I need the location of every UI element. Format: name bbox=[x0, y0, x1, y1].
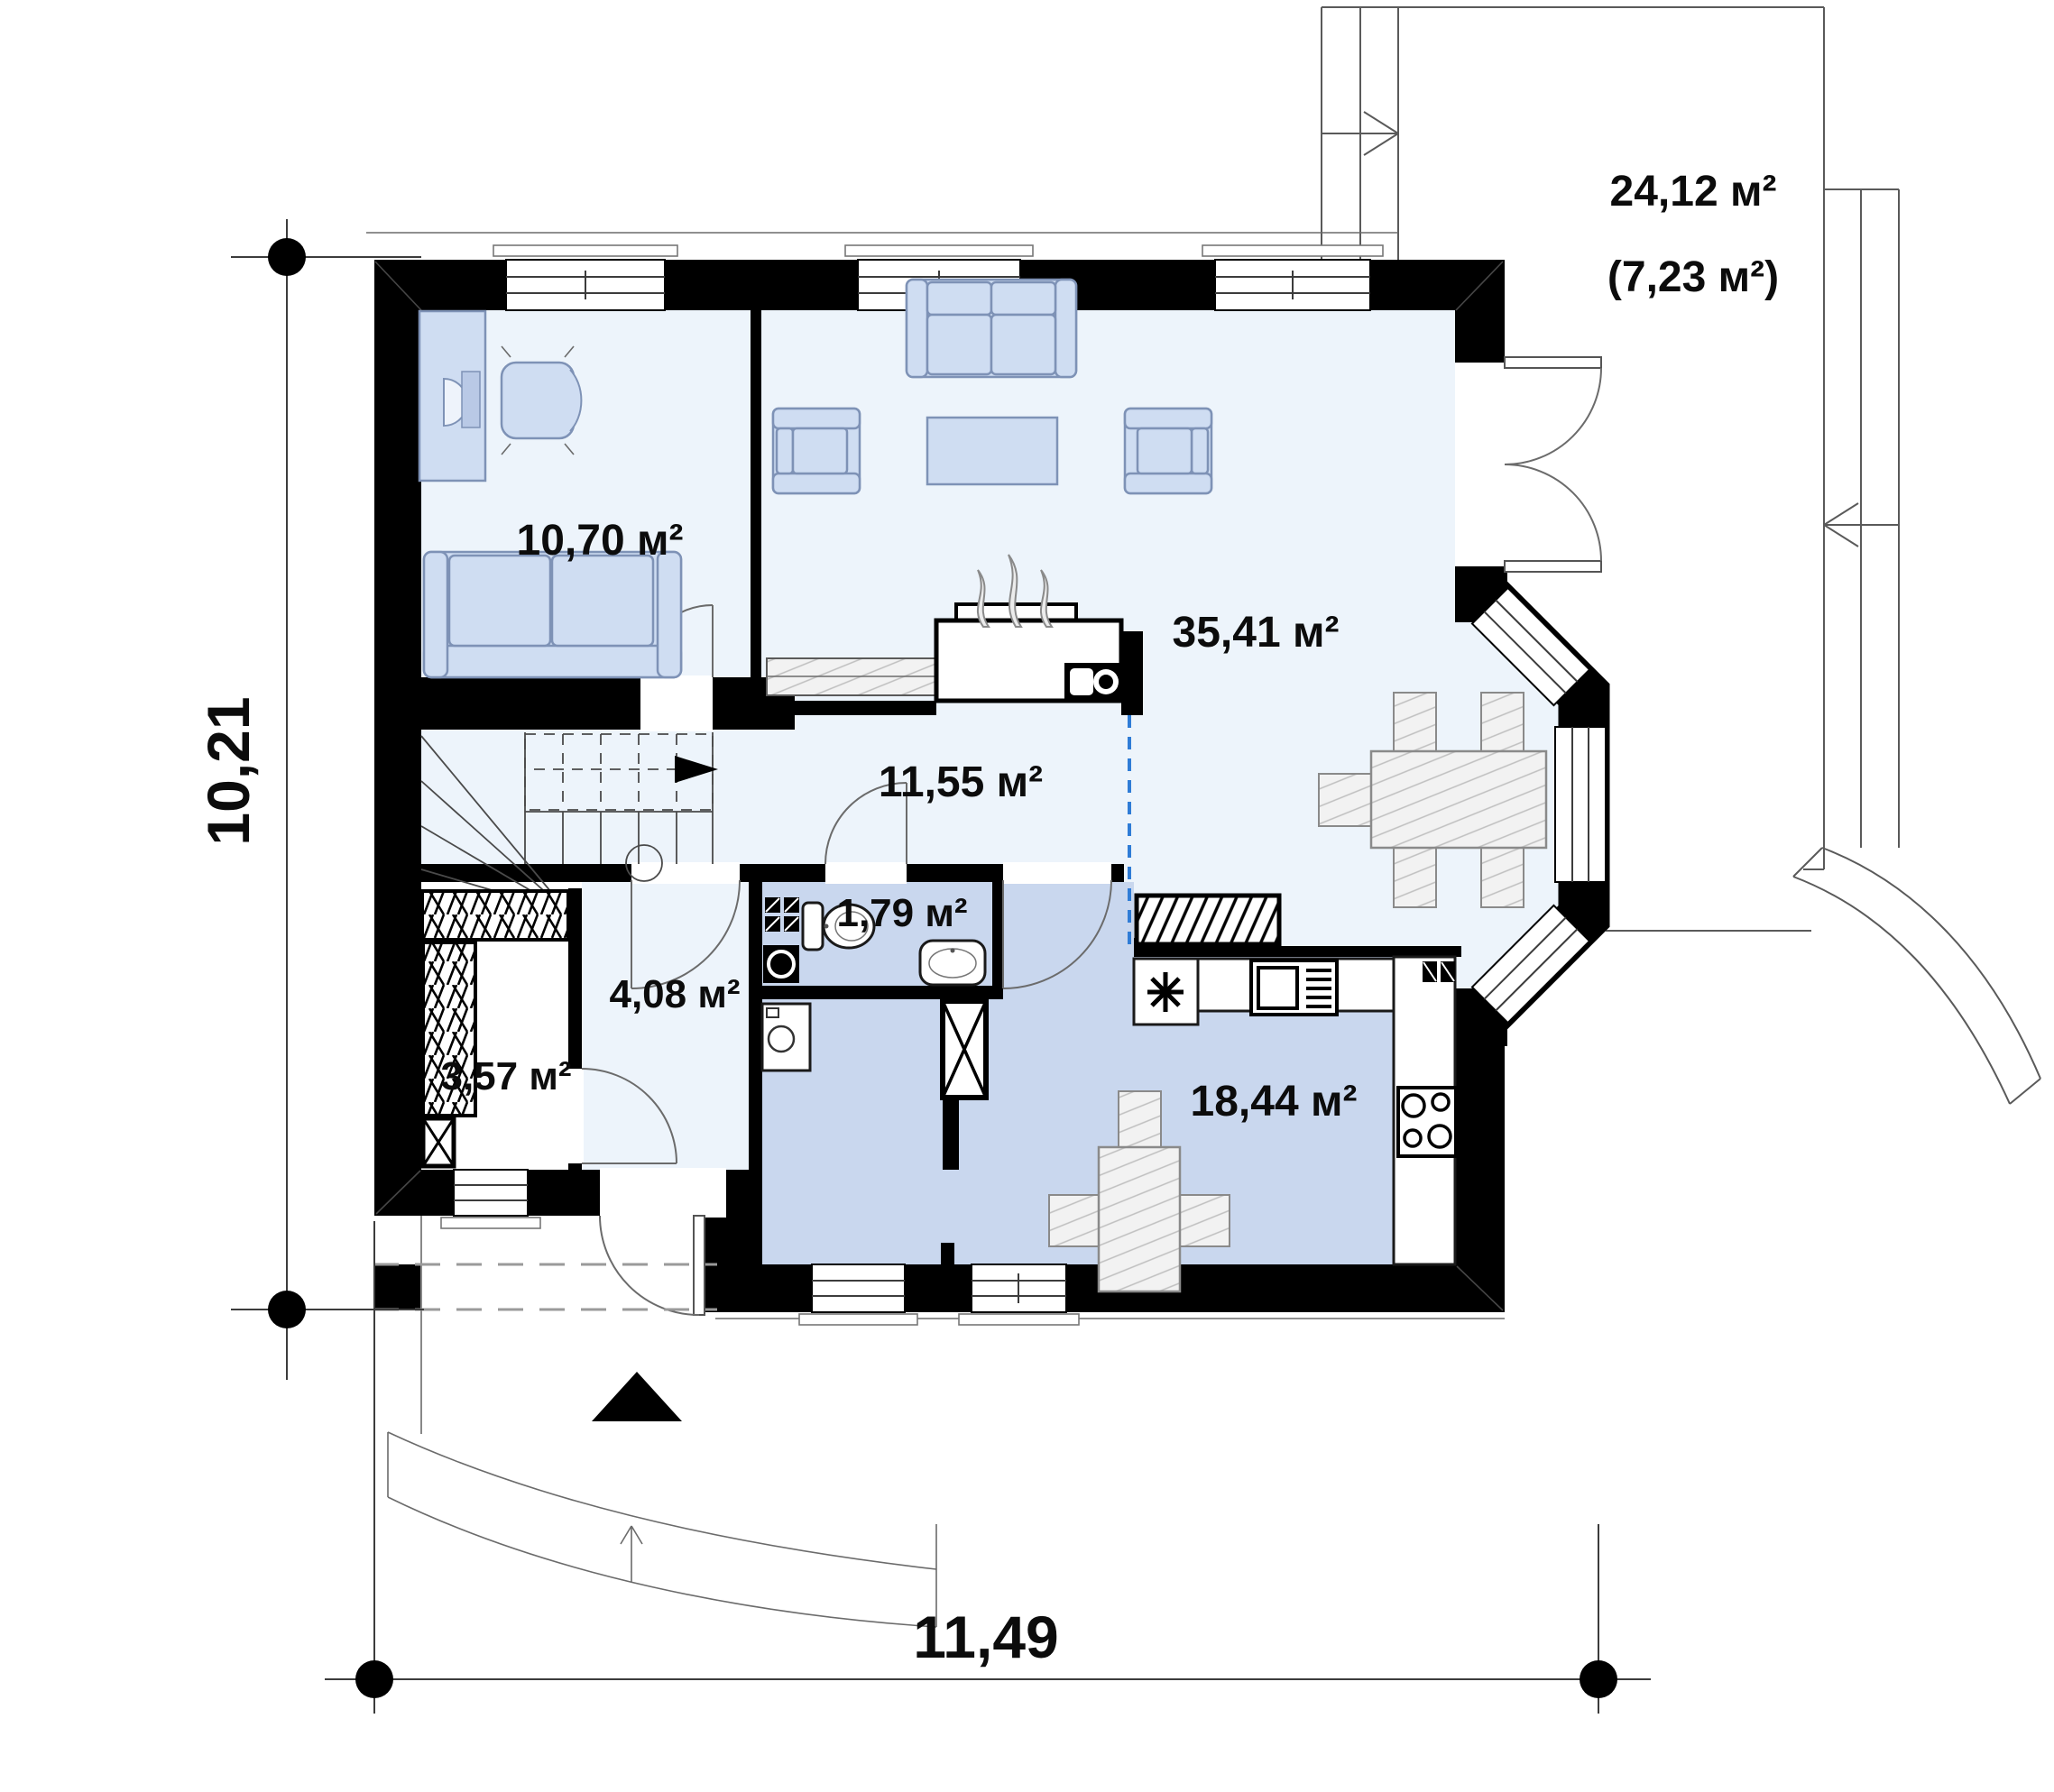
kitchen-area-label: 18,44 м² bbox=[1191, 1078, 1358, 1126]
oven bbox=[1251, 960, 1337, 1015]
living-sofa bbox=[907, 280, 1076, 377]
dim-marker bbox=[268, 1291, 306, 1328]
coffee-table bbox=[927, 418, 1057, 484]
wall-pier-fireplace bbox=[1121, 631, 1143, 715]
office-area-label: 10,70 м² bbox=[517, 517, 684, 565]
terrace-area-label-secondary: (7,23 м²) bbox=[1607, 253, 1779, 301]
dining-chair bbox=[1394, 693, 1436, 754]
wall-vestibule-east bbox=[749, 880, 762, 1170]
dining-chair bbox=[1394, 846, 1436, 907]
dining-chair bbox=[1481, 846, 1524, 907]
curved-step-outer bbox=[1822, 848, 2040, 1079]
vestibule-area-label: 4,08 м² bbox=[609, 972, 740, 1016]
closet-rail-top bbox=[422, 891, 568, 940]
wall-office-living bbox=[751, 269, 761, 677]
window-office-north bbox=[493, 245, 677, 310]
floor-plan-drawing: 10,21 11,49 10,70 м² 35,41 м² 11,55 м² 1… bbox=[0, 0, 2054, 1792]
armchair-left bbox=[773, 409, 860, 493]
washing-machine bbox=[762, 1004, 810, 1071]
dining-table bbox=[1371, 751, 1546, 848]
kitchen-table bbox=[1099, 1147, 1180, 1291]
kitchen-chair bbox=[1180, 1195, 1230, 1246]
wall-wc-east bbox=[992, 880, 1003, 986]
boiler-unit bbox=[1064, 663, 1121, 701]
vent-shaft-wardrobe bbox=[423, 1118, 454, 1166]
wall-hall-living bbox=[761, 701, 936, 715]
window-wardrobe-south bbox=[441, 1170, 540, 1228]
steps-direction-arrow bbox=[621, 1526, 642, 1583]
wall-office-south bbox=[421, 677, 795, 730]
dim-height-label: 10,21 bbox=[195, 696, 262, 845]
window-kitchen-south-1 bbox=[799, 1264, 917, 1325]
sink-symbol bbox=[1147, 972, 1184, 1012]
curved-entry-steps bbox=[388, 1432, 936, 1627]
dim-width-label: 11,49 bbox=[913, 1604, 1059, 1670]
kitchen-chair bbox=[1049, 1195, 1099, 1246]
armchair-right bbox=[1125, 409, 1211, 493]
dim-marker bbox=[1580, 1660, 1617, 1698]
floor-plan-page: 10,21 11,49 10,70 м² 35,41 м² 11,55 м² 1… bbox=[0, 0, 2054, 1792]
curved-step-inner bbox=[1793, 877, 2010, 1104]
wall-east-upper bbox=[1455, 310, 1505, 363]
wardrobe-area-label: 3,57 м² bbox=[440, 1054, 571, 1098]
wall-wc-south bbox=[749, 986, 1003, 999]
tv-sideboard bbox=[767, 658, 935, 695]
wall-west bbox=[374, 260, 421, 1216]
vent-shaft-kitchen bbox=[943, 1001, 986, 1098]
living-area-label: 35,41 м² bbox=[1173, 609, 1340, 657]
dining-chair bbox=[1319, 774, 1373, 826]
vestibule-floor bbox=[582, 882, 749, 1170]
dim-marker bbox=[268, 238, 306, 276]
wall-stub-shaft bbox=[943, 1098, 959, 1170]
wc-fan-unit bbox=[763, 945, 799, 983]
cooktop bbox=[1398, 1088, 1456, 1156]
window-living-north-2 bbox=[1202, 245, 1383, 310]
dining-chair bbox=[1481, 693, 1524, 754]
door-terrace-french bbox=[1505, 357, 1601, 572]
entrance-arrow bbox=[592, 1372, 682, 1421]
terrace-area-label: 24,12 м² bbox=[1610, 168, 1777, 216]
wc-area-label: 1,79 м² bbox=[836, 891, 967, 935]
dim-marker bbox=[355, 1660, 393, 1698]
wall-kitchen-north bbox=[1134, 946, 1461, 957]
office-sofa bbox=[424, 552, 681, 677]
radiator-dining bbox=[1137, 896, 1279, 944]
window-kitchen-south-2 bbox=[959, 1264, 1079, 1325]
porch-post bbox=[373, 1264, 420, 1310]
hallway-area-label: 11,55 м² bbox=[879, 758, 1043, 806]
wall-stub-kitchen bbox=[941, 1243, 954, 1264]
window-bay-east bbox=[1555, 727, 1606, 882]
wc-sink bbox=[920, 941, 985, 985]
keyboard-icon bbox=[462, 372, 480, 427]
kitchen-chair bbox=[1119, 1091, 1161, 1147]
